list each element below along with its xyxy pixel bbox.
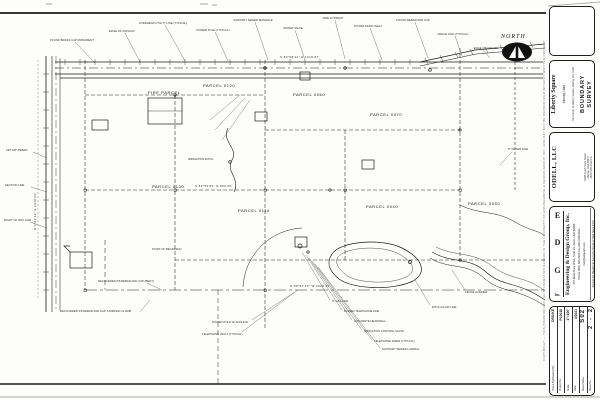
callout-label: SANITARY SEWER MANHOLE	[233, 18, 272, 22]
callout-label: TELEPHONE VAULT (TYPICAL)	[202, 332, 243, 336]
info-label: Project No.:	[559, 378, 562, 391]
north-label: NORTH	[500, 34, 526, 40]
project-name: Liberty Square	[551, 63, 557, 125]
survey-sheet: NORTH PARCEL 0130 FIRE PARCEL PARCEL 012…	[0, 0, 600, 400]
project-location: Murray, Utah	[562, 63, 566, 125]
callout-label: FOUND REBAR AND CAP	[396, 18, 430, 22]
callout-label: RECOVERED 5/8 REBAR AND CAP STAMPED LS 4…	[60, 309, 132, 313]
callout-label: IRRIGATION DITCH	[188, 157, 213, 161]
info-value: PL0018	[559, 309, 563, 321]
client-box: ODELL, LLC 5248 South State Street Murra…	[549, 132, 595, 202]
firm-logo-letter: D	[555, 238, 561, 247]
parcel-boundaries	[60, 48, 545, 383]
firm-logo-letter: E	[555, 211, 560, 220]
sheet-info-box: Drawn By/Checked By: DRO/KE Project No.:…	[549, 306, 595, 396]
callout-labels: FOUND BRASS CAP MONUMENT EDGE OF ASPHALT…	[4, 16, 528, 351]
parcel-label: PARCEL 0040	[366, 204, 398, 209]
bearing-labels: S 89°58'12" E 1319.87' N 0°02'44" E 2640…	[33, 55, 331, 288]
sheet-title-line2: SURVEY	[587, 63, 593, 125]
callout-label: FIRE HYDRANT	[323, 16, 344, 20]
info-label: Scale:	[567, 384, 570, 391]
firm-phone: Phone (801) 805-0010 Fax (801) 805-0011	[578, 208, 581, 300]
callout-label: POWER POLE (TYPICAL)	[196, 28, 229, 32]
client-name: ODELL, LLC	[551, 135, 558, 199]
callout-label: POWER POLE W/ ANCHOR	[212, 320, 248, 324]
callout-label: IRRIGATION CONTROL VALVE	[364, 329, 404, 333]
callout-label: 4" GAS LINE	[332, 299, 348, 303]
callout-label: RECOVERED 5/8 REBAR AND CAP (BENT)	[98, 279, 154, 283]
callout-label: POINT OF BEGINNING	[152, 247, 182, 251]
leader-lines	[30, 20, 512, 348]
survey-drawing: NORTH PARCEL 0130 FIRE PARCEL PARCEL 012…	[0, 0, 600, 400]
road-lines	[38, 42, 545, 312]
parcel-labels: PARCEL 0130 FIRE PARCEL PARCEL 0120 PARC…	[148, 83, 500, 213]
sheet-number-current: 2	[588, 326, 594, 329]
callout-label: SET 5/8" REBAR	[6, 148, 27, 152]
north-arrow-icon: NORTH	[500, 34, 532, 62]
sheet-info-row: Date: 4/2021	[573, 307, 581, 393]
sheet-name-value: S02	[580, 309, 586, 323]
firm-email: mail@edgutah.com	[583, 208, 586, 300]
sheet-number-row: Sheet No.: 2 - 2	[588, 307, 595, 393]
callout-label: FENCE LINE (TYPICAL)	[438, 32, 469, 36]
bearing-label: S 89°55'00" E 660.00'	[195, 184, 233, 188]
sheet-name-row: Sheet Name: S02	[580, 307, 588, 393]
firm-logo-letter: G	[554, 266, 560, 275]
callout-label: DITCH FLOW LINE	[432, 305, 457, 309]
callout-label: RIGHT OF WAY LINE	[4, 218, 31, 222]
callout-label: 8" WATER LINE	[508, 147, 528, 151]
firm-name: Engineering & Design Group, Inc.	[565, 208, 571, 300]
firm-box: E D G Inc. Engineering & Design Group, I…	[549, 206, 595, 302]
parcel-label: PARCEL 0110	[238, 208, 270, 213]
callout-label: FOUND BRASS CAP MONUMENT	[50, 38, 94, 42]
callout-label: SECTION LINE	[5, 183, 25, 187]
callout-label: STORM DRAIN INLET	[354, 24, 383, 28]
firm-logo: E D G Inc.	[552, 211, 564, 297]
utility-curves	[226, 128, 545, 306]
sheet-info-row: Scale: 1"=100'	[565, 307, 573, 393]
info-label: Sheet Name:	[582, 376, 585, 391]
callout-label: FENCE CORNER	[465, 290, 487, 294]
sheet-info-row: Project No.: PL0018	[558, 307, 566, 393]
bearing-label: N 0°02'44" E 2640.00'	[33, 192, 37, 230]
stamp-box	[549, 6, 595, 56]
parcel-label: PARCEL 0060	[293, 92, 325, 97]
firm-logo-inc: Inc.	[555, 293, 561, 297]
project-description: SE Corner of Liberty Square, Murray City…	[572, 63, 575, 125]
parcel-label: FIRE PARCEL	[148, 90, 181, 95]
client-phone: (801) 555-0139 Ph.	[590, 135, 593, 199]
sheet-number-separator: -	[588, 318, 594, 320]
info-value: 4/2021	[574, 309, 578, 319]
bearing-label: N 89°57'30" W 2639.45'	[290, 284, 331, 288]
bearing-label: S 89°58'12" E 1319.87'	[280, 55, 320, 59]
info-value: 1"=100'	[566, 309, 570, 321]
callout-label: CONCRETE HEADWALL	[354, 319, 386, 323]
sheet-info-row: Drawn By/Checked By: DRO/KE	[550, 307, 558, 393]
sheet-number-total: 2	[588, 309, 594, 312]
callout-label: WATER VALVE	[283, 26, 302, 30]
callout-label: SANITARY SEWER LATERAL	[382, 347, 420, 351]
firm-address: 207 West Plaza Drive, Suite 10, Orem, Ut…	[573, 208, 576, 300]
parcel-label: PARCEL 0070	[370, 112, 402, 117]
firm-tagline: Serving the Mapping & Surveying Needs of…	[590, 208, 595, 300]
sheet-border	[0, 2, 600, 397]
callout-label: EDGE OF GRAVEL	[474, 46, 499, 50]
info-label: Sheet No.:	[589, 379, 592, 391]
parcel-label: PARCEL 0050	[468, 201, 500, 206]
callout-label: BURIED TELEPHONE LINE	[344, 309, 379, 313]
info-label: Drawn By/Checked By:	[552, 365, 555, 391]
callout-label: TELEPHONE RISER (TYPICAL)	[374, 339, 415, 343]
parcel-label: PARCEL 0130	[152, 184, 184, 189]
info-label: Date:	[574, 385, 577, 391]
parcel-label: PARCEL 0120	[203, 83, 235, 88]
project-title-box: Liberty Square Murray, Utah SE Corner of…	[549, 60, 595, 128]
callout-label: EDGE OF ASPHALT	[109, 29, 135, 33]
callout-label: OVERHEAD UTILITY LINE (TYPICAL)	[139, 21, 187, 25]
info-value: DRO/KE	[551, 309, 555, 322]
structures	[64, 67, 461, 268]
